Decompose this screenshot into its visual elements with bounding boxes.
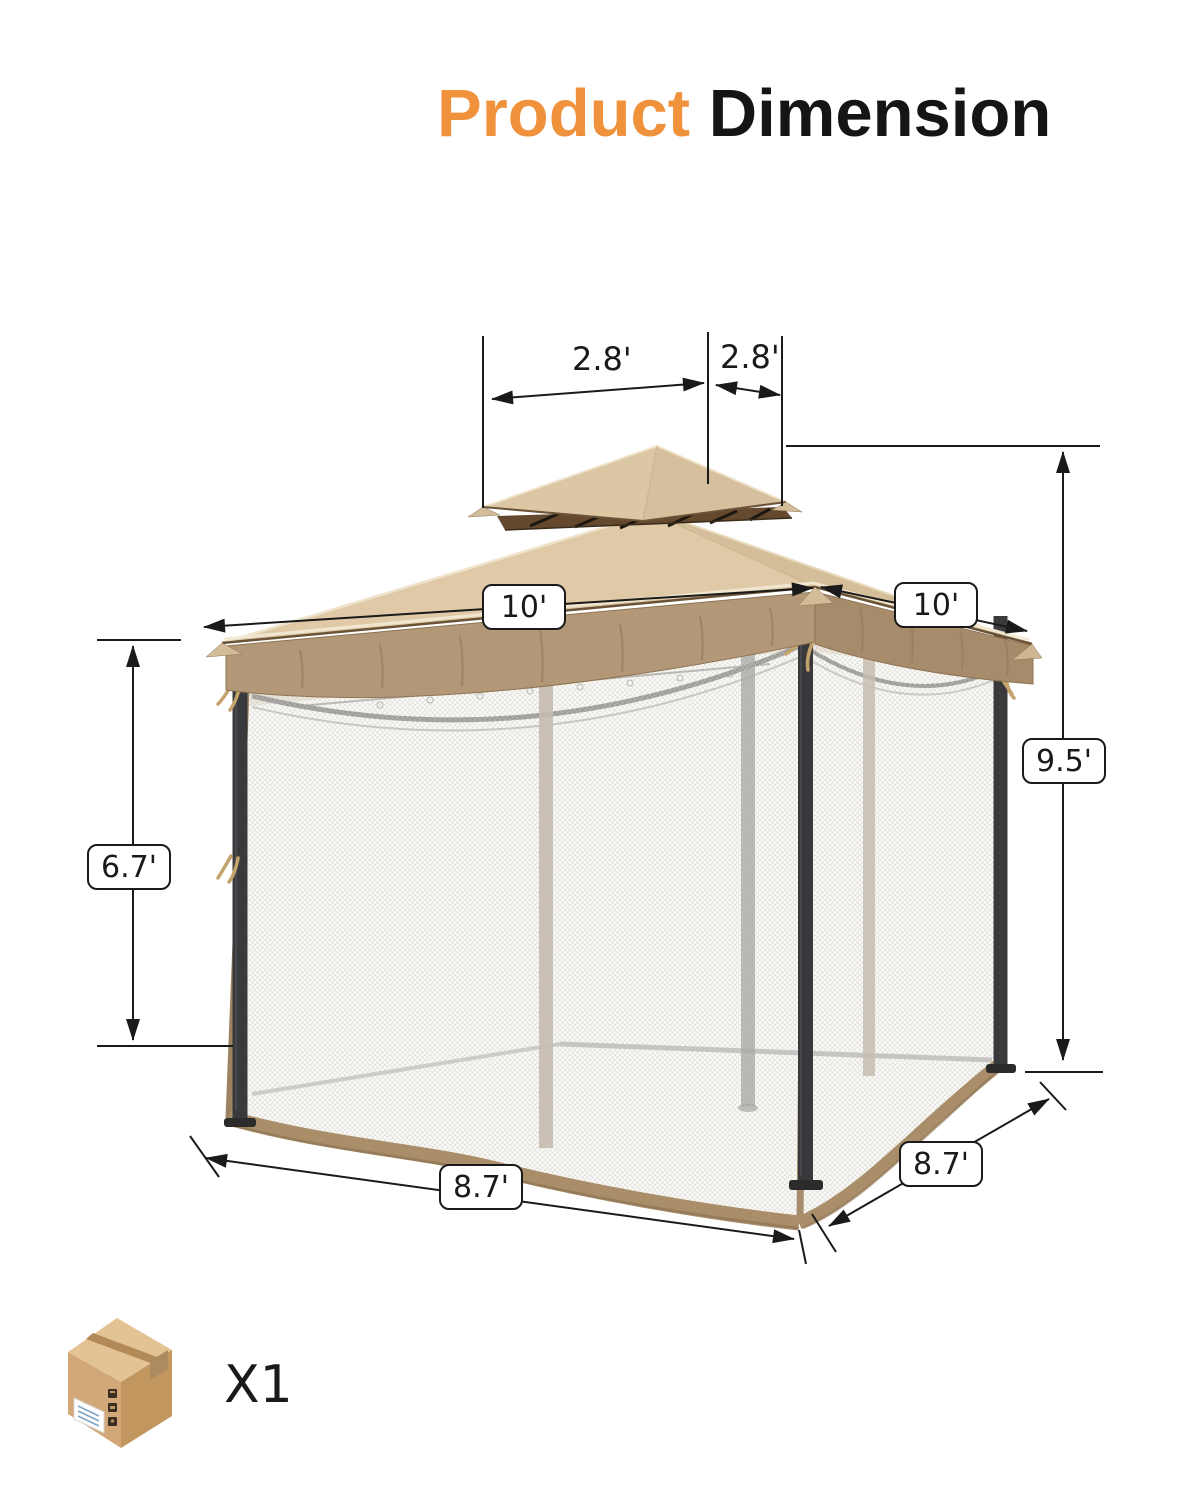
gazebo-illustration xyxy=(206,446,1042,1228)
dim-label-canopy-right: 2.8' xyxy=(720,338,780,376)
gazebo-netting xyxy=(229,616,1000,1228)
dim-label-roof-left: 10' xyxy=(482,584,566,630)
dim-label-base-side: 8.7' xyxy=(899,1141,983,1187)
package-box-icon xyxy=(68,1318,172,1448)
gazebo-dimension-diagram xyxy=(0,0,1200,1500)
dim-label-base-front: 8.7' xyxy=(439,1164,523,1210)
quantity-label: X1 xyxy=(224,1355,293,1415)
dim-label-post-height: 6.7' xyxy=(87,844,171,890)
dim-label-total-height: 9.5' xyxy=(1022,738,1106,784)
dim-label-canopy-left: 2.8' xyxy=(572,340,632,378)
product-dimension-page: { "title": { "accent": "Product", "rest"… xyxy=(0,0,1200,1500)
dim-label-roof-right: 10' xyxy=(894,582,978,628)
